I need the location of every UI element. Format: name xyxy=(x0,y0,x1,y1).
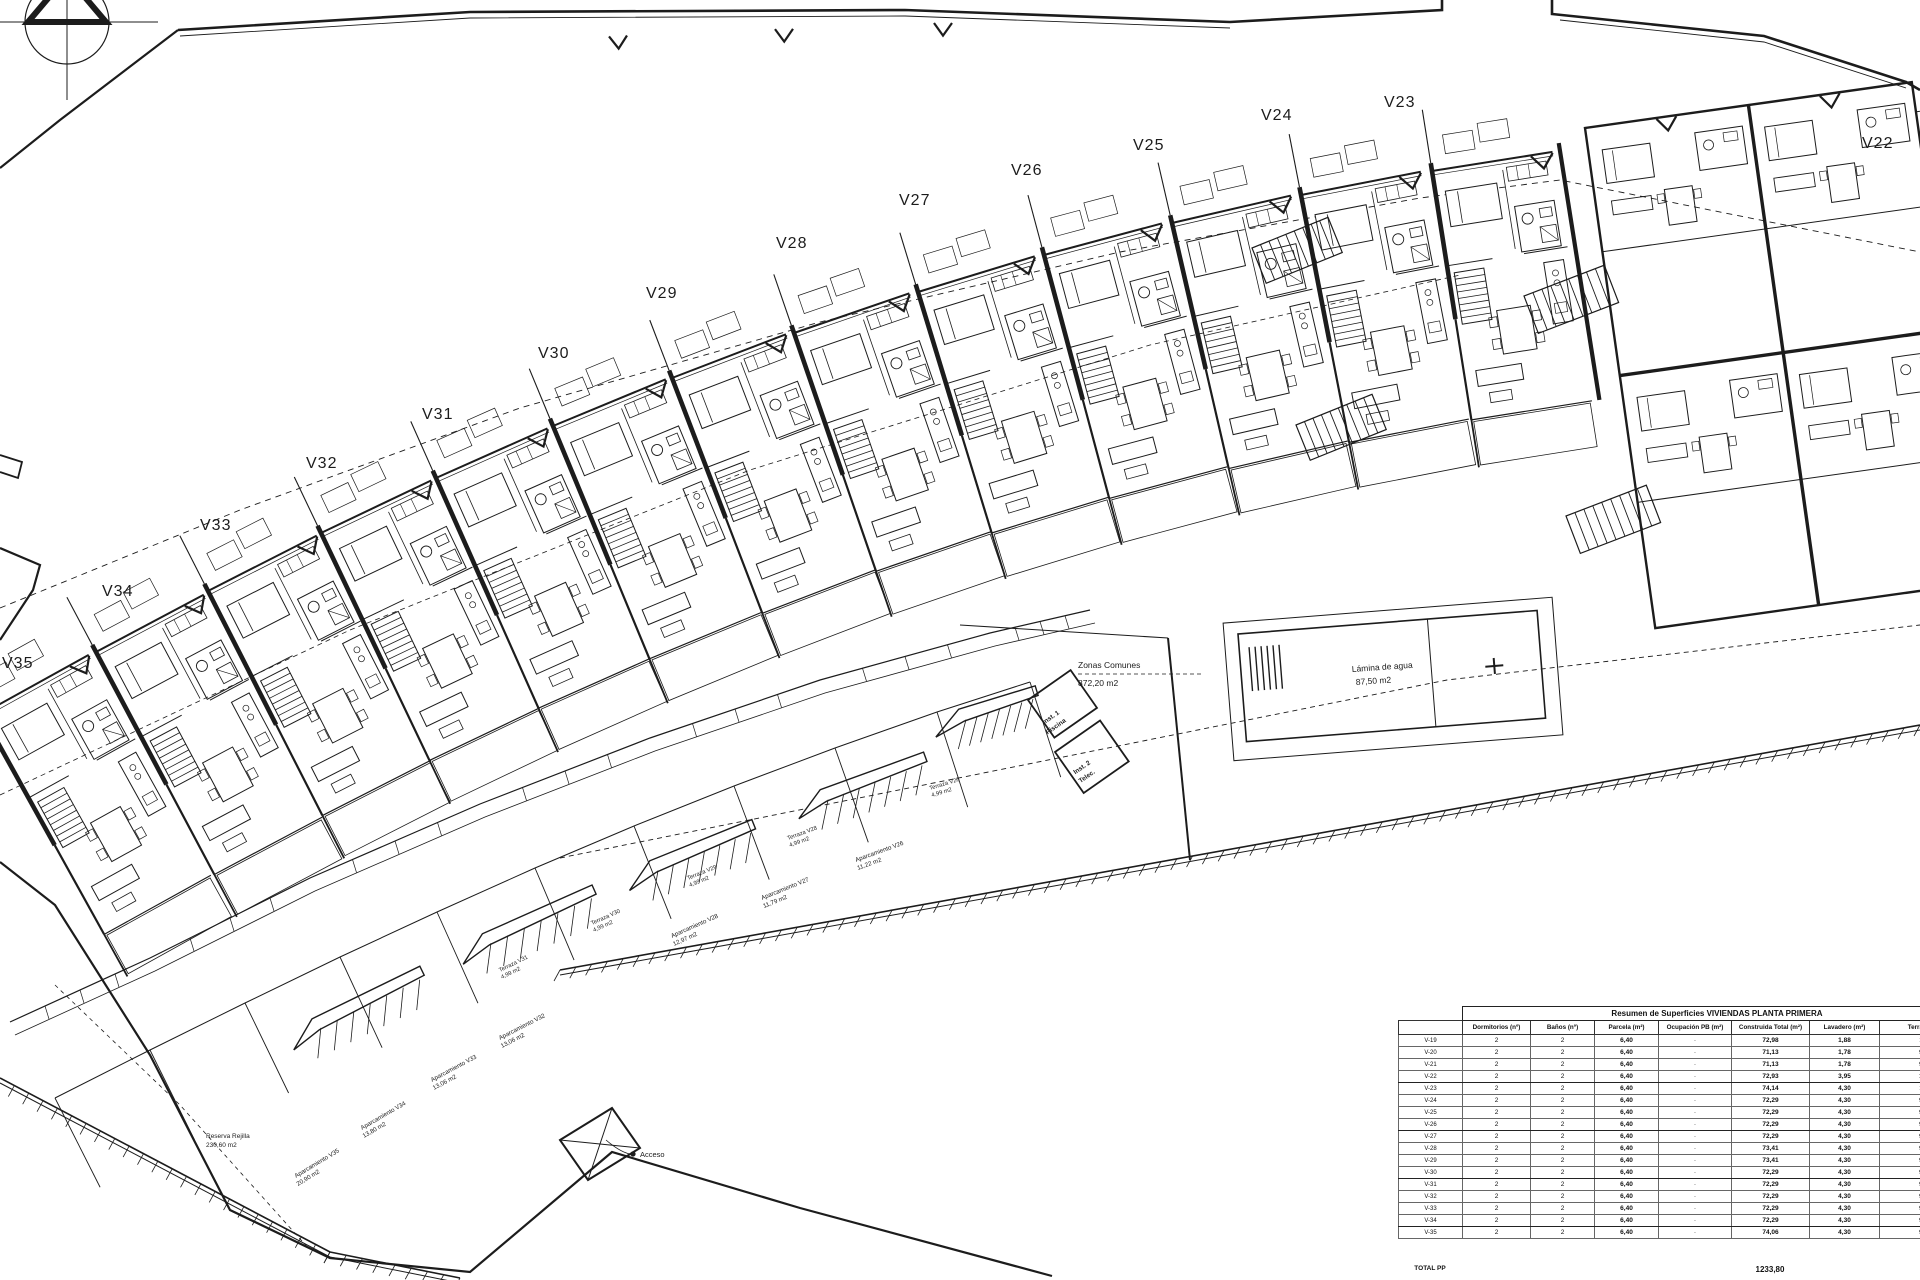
table-row-v-27: V-27226,40-72,294,309,15 xyxy=(1399,1131,1920,1143)
cell-v-33-0: V-33 xyxy=(1399,1203,1463,1215)
ramp xyxy=(792,752,937,836)
garden-fence xyxy=(1289,134,1299,187)
coffee-table xyxy=(774,575,798,592)
stair-tread xyxy=(489,570,516,582)
cell-v-30-5: 72,29 xyxy=(1732,1167,1810,1179)
dining-table xyxy=(203,747,254,802)
hob-burner xyxy=(582,550,590,558)
meter-box xyxy=(555,377,590,406)
kitchen-sink xyxy=(476,620,491,634)
terrace-divider xyxy=(538,708,558,752)
meter-box xyxy=(706,311,741,339)
sofa xyxy=(1476,363,1524,386)
stall-divider xyxy=(150,1050,194,1140)
sink xyxy=(1029,311,1043,323)
partition xyxy=(1114,247,1135,324)
cell-v-31-1: 2 xyxy=(1463,1179,1531,1191)
stair-tread xyxy=(1334,329,1363,335)
chair xyxy=(317,729,329,742)
stair-tread xyxy=(1088,390,1117,398)
meter-box xyxy=(94,600,129,631)
gate-cross xyxy=(588,1108,612,1180)
walkway-divider xyxy=(438,823,442,836)
sofa xyxy=(989,470,1038,499)
stair-tread xyxy=(1330,309,1359,315)
table-row-v-20: V-20226,40-71,131,789,15 xyxy=(1399,1047,1920,1059)
hob-burner xyxy=(134,772,142,780)
table-total-row: TOTAL PP 1233,80 xyxy=(1398,1265,1920,1280)
kitchen-sink xyxy=(1428,321,1442,333)
kitchen-sink xyxy=(1179,371,1193,384)
stair-tread xyxy=(720,474,748,485)
wardrobe-line xyxy=(174,620,181,632)
coffee-table xyxy=(889,534,913,551)
stair-outline xyxy=(1524,265,1619,333)
ramp-outline xyxy=(285,966,429,1050)
unit-label-v24: V24 xyxy=(1261,107,1292,124)
chair xyxy=(1692,441,1700,451)
hob-burner xyxy=(129,763,137,771)
bed-pillow-line xyxy=(1775,128,1779,158)
dining-table xyxy=(764,489,812,542)
walkway-divider xyxy=(115,974,119,987)
bed-pillow-line xyxy=(1612,150,1616,180)
pool-ladder xyxy=(1273,645,1276,689)
stair-tread xyxy=(60,827,86,842)
cell-v-34-2: 2 xyxy=(1531,1215,1595,1227)
cell-v-30-2: 2 xyxy=(1531,1167,1595,1179)
wardrobe-line xyxy=(297,555,303,567)
stair-tread xyxy=(281,708,308,722)
walkway-divider xyxy=(45,1006,49,1019)
cell-v-32-2: 2 xyxy=(1531,1191,1595,1203)
stair-tread xyxy=(1458,294,1488,299)
chair xyxy=(1406,330,1416,341)
wardrobe-line xyxy=(1012,272,1016,285)
stair-tread xyxy=(388,647,415,660)
stair-tread xyxy=(1333,322,1362,328)
dining-table xyxy=(1497,305,1537,354)
stair-tread xyxy=(269,685,296,699)
toilet xyxy=(650,443,664,457)
unit-stairs xyxy=(150,727,201,787)
cell-v-27-5: 72,29 xyxy=(1732,1131,1810,1143)
rear-terrace xyxy=(1351,421,1475,487)
garden-fence xyxy=(529,369,550,419)
unit-plan-v29 xyxy=(650,276,894,658)
coffee-table xyxy=(1006,497,1030,513)
stair-tread xyxy=(1455,275,1485,280)
rear-wall xyxy=(1229,441,1348,468)
unit-label-v29: V29 xyxy=(646,285,677,302)
dining-table xyxy=(1001,411,1046,463)
chair xyxy=(197,769,209,782)
coffee-table xyxy=(222,833,246,852)
party-wall-rear xyxy=(497,615,538,708)
table-row-v-30: V-30226,40-72,294,309,15 xyxy=(1399,1167,1920,1179)
cell-v-21-7: 9,15 xyxy=(1880,1059,1920,1071)
hob-burner xyxy=(1176,349,1183,356)
rear-wall xyxy=(429,708,539,761)
stair-tread xyxy=(165,756,191,770)
garden-fence xyxy=(180,536,205,584)
partition xyxy=(546,516,586,534)
cell-v-28-6: 4,30 xyxy=(1810,1143,1880,1155)
partition xyxy=(210,679,249,700)
bed xyxy=(1,703,64,760)
meter-box xyxy=(1214,166,1248,191)
chair xyxy=(347,690,359,703)
unit-plan-v26 xyxy=(1028,164,1240,545)
rear-wall xyxy=(104,875,211,934)
ramp-tick xyxy=(984,709,1007,739)
wall-tick xyxy=(166,1169,172,1180)
access-gate: Acceso xyxy=(560,1108,665,1180)
stair-tread xyxy=(727,493,755,504)
unit-label-v25: V25 xyxy=(1133,137,1164,154)
stair-tread xyxy=(1080,359,1109,367)
rear-terrace xyxy=(541,661,667,749)
cell-v-26-7: 9,15 xyxy=(1880,1119,1920,1131)
cell-v-23-3: 6,40 xyxy=(1595,1083,1659,1095)
wall-tick xyxy=(340,1255,346,1266)
chair xyxy=(427,674,439,686)
wall-line-2 xyxy=(560,730,1920,975)
wardrobe-line xyxy=(887,309,892,322)
stair-tread xyxy=(1083,371,1112,379)
header-2: Baños (nº) xyxy=(1531,1021,1595,1035)
cell-v-25-2: 2 xyxy=(1531,1107,1595,1119)
reserva-label: Reserva Rejilla xyxy=(206,1133,250,1140)
cell-v-29-1: 2 xyxy=(1463,1155,1531,1167)
walkway-divider xyxy=(270,898,274,911)
cell-v-23-4: - xyxy=(1659,1083,1732,1095)
cell-v-26-1: 2 xyxy=(1463,1119,1531,1131)
hob-burner xyxy=(933,418,941,426)
chair xyxy=(208,788,220,801)
cell-v-29-7: 9,15 xyxy=(1880,1155,1920,1167)
walkway-divider xyxy=(190,938,194,951)
facade-wall xyxy=(1044,223,1162,255)
sofa xyxy=(420,692,468,726)
terrace-divider xyxy=(876,571,892,616)
bed xyxy=(1059,260,1119,308)
bathroom xyxy=(186,640,243,699)
wardrobe xyxy=(1118,233,1160,257)
rear-terrace xyxy=(325,763,450,856)
stair-tread xyxy=(264,673,291,687)
unit-label-v26: V26 xyxy=(1011,162,1042,179)
toilet xyxy=(1900,364,1911,375)
bed xyxy=(454,473,516,527)
chair xyxy=(1694,189,1702,199)
pool-label: Lámina de agua xyxy=(1351,660,1413,674)
sink xyxy=(1155,278,1169,290)
rear-terrace xyxy=(1112,469,1237,542)
cell-v-25-1: 2 xyxy=(1463,1107,1531,1119)
sink xyxy=(549,482,564,495)
header-6: Lavadero (m²) xyxy=(1810,1021,1880,1035)
facade-wall xyxy=(1172,196,1291,223)
toilet xyxy=(1738,387,1749,398)
cell-v-29-3: 6,40 xyxy=(1595,1155,1659,1167)
ramp xyxy=(285,966,436,1066)
stair-tread xyxy=(729,499,757,510)
terrace-divider xyxy=(649,659,667,703)
sofa xyxy=(1611,195,1653,214)
stair-tread xyxy=(616,550,644,561)
partition xyxy=(1270,289,1313,299)
party-wall xyxy=(1431,163,1456,319)
facade-wall xyxy=(1432,152,1552,171)
unit-stairs xyxy=(598,508,646,568)
unit-plan-v32 xyxy=(294,425,560,804)
cell-v-34-0: V-34 xyxy=(1399,1215,1463,1227)
partition xyxy=(1447,259,1492,266)
stair-tread xyxy=(606,526,634,537)
pool-basin xyxy=(1238,610,1546,741)
cell-v-35-1: 2 xyxy=(1463,1227,1531,1239)
stair-tread xyxy=(500,594,527,606)
chair xyxy=(247,767,259,780)
cell-v-35-4: - xyxy=(1659,1227,1732,1239)
bed xyxy=(1187,230,1246,277)
walkway-divider xyxy=(523,788,527,801)
hob-burner xyxy=(810,448,818,456)
bed-pillow-line xyxy=(1647,398,1651,428)
cell-v-31-2: 2 xyxy=(1531,1179,1595,1191)
walkway-divider xyxy=(353,860,357,873)
stair-tread xyxy=(156,738,182,752)
unit-label-v32: V32 xyxy=(306,455,337,472)
cell-v-35-3: 6,40 xyxy=(1595,1227,1659,1239)
dining-table xyxy=(1664,186,1697,226)
sofa xyxy=(1646,443,1688,462)
wall-tick xyxy=(195,1184,201,1195)
stair-tread xyxy=(1210,354,1239,361)
cell-v-30-0: V-30 xyxy=(1399,1167,1463,1179)
meter-box xyxy=(830,268,865,296)
block-partition xyxy=(1602,206,1920,252)
dining-table xyxy=(648,534,696,588)
stair-tread xyxy=(1204,329,1233,336)
stair-tread xyxy=(382,635,409,648)
kitchen-sink xyxy=(365,674,380,688)
stair-tread xyxy=(47,805,73,820)
facade-wall xyxy=(436,428,547,478)
stair-outline xyxy=(1566,485,1661,553)
wardrobe-line xyxy=(753,355,758,368)
chair xyxy=(1856,166,1864,176)
table-row-v-29: V-29226,40-73,414,309,15 xyxy=(1399,1155,1920,1167)
cell-v-30-3: 6,40 xyxy=(1595,1167,1659,1179)
boundary-top xyxy=(178,0,1442,30)
toilet xyxy=(1521,212,1534,225)
cell-v-32-0: V-32 xyxy=(1399,1191,1463,1203)
hob-burner xyxy=(357,655,365,663)
cell-v-21-0: V-21 xyxy=(1399,1059,1463,1071)
dining-table xyxy=(1699,433,1732,473)
boundary-left-diagonal xyxy=(0,30,178,168)
toilet xyxy=(194,658,209,673)
cell-v-22-7: 10,2 xyxy=(1880,1071,1920,1083)
walkway-divider xyxy=(80,990,84,1003)
wall-tick xyxy=(8,1086,14,1097)
block-outline xyxy=(1585,82,1920,628)
facade-wall xyxy=(208,536,317,591)
cell-v-23-5: 74,14 xyxy=(1732,1083,1810,1095)
header-3: Parcela (m²) xyxy=(1595,1021,1659,1035)
cell-v-20-1: 2 xyxy=(1463,1047,1531,1059)
sink xyxy=(666,433,681,446)
boundary-top-right-inner xyxy=(1560,20,1906,88)
boundary-top-right xyxy=(1552,0,1920,90)
stair-tread xyxy=(962,406,991,415)
table-row-v-28: V-28226,40-73,414,309,15 xyxy=(1399,1143,1920,1155)
summary-table: Resumen de Superficies VIVIENDAS PLANTA … xyxy=(1398,1006,1920,1280)
hob-burner xyxy=(1301,322,1308,329)
exterior-stairs xyxy=(1524,265,1619,333)
wall-tick xyxy=(123,1146,129,1157)
header-5: Construida Total (m²) xyxy=(1732,1021,1810,1035)
hob-burner xyxy=(469,601,477,609)
stair-tread xyxy=(958,393,987,402)
stair-tread xyxy=(1087,384,1116,392)
table-row-v-35: V-35226,40-74,064,309,65 xyxy=(1399,1227,1920,1239)
sofa xyxy=(311,746,359,781)
meter-box xyxy=(1051,210,1085,236)
cell-v-32-5: 72,29 xyxy=(1732,1191,1810,1203)
cell-v-23-0: V-23 xyxy=(1399,1083,1463,1095)
chair xyxy=(1819,171,1827,181)
cell-v-28-3: 6,40 xyxy=(1595,1143,1659,1155)
rear-terrace xyxy=(1474,403,1597,465)
cell-v-24-1: 2 xyxy=(1463,1095,1531,1107)
boundary-wedge xyxy=(934,23,952,36)
unit-label-v35: V35 xyxy=(2,655,33,672)
chair xyxy=(457,635,469,647)
pool-ladder xyxy=(1279,645,1282,689)
bed xyxy=(339,526,401,581)
garden-fence xyxy=(1028,195,1042,247)
garden-fence xyxy=(1422,110,1430,163)
chair xyxy=(466,655,478,667)
kitchen-sink xyxy=(142,791,157,806)
reserva-area-label: 230,60 m2 xyxy=(206,1142,237,1149)
sink xyxy=(435,534,450,547)
cell-v-19-0: V-19 xyxy=(1399,1035,1463,1047)
party-wall-rear xyxy=(962,435,992,533)
wardrobe-line xyxy=(1385,187,1388,201)
pool-ladder xyxy=(1267,646,1270,690)
cell-v-26-2: 2 xyxy=(1531,1119,1595,1131)
wardrobe-line xyxy=(1528,164,1530,178)
bed xyxy=(571,423,633,476)
table-row-v-26: V-26226,40-72,294,309,15 xyxy=(1399,1119,1920,1131)
cell-v-22-6: 3,95 xyxy=(1810,1071,1880,1083)
retaining-wall-corner-2 xyxy=(324,1252,460,1280)
unit-plan-v31 xyxy=(411,372,670,752)
rear-terrace xyxy=(432,711,557,802)
table-row-v-32: V-32226,40-72,294,309,15 xyxy=(1399,1191,1920,1203)
unit-label-v22: V22 xyxy=(1862,135,1893,152)
cell-v-24-2: 2 xyxy=(1531,1095,1595,1107)
cell-v-26-5: 72,29 xyxy=(1732,1119,1810,1131)
cell-v-33-5: 72,29 xyxy=(1732,1203,1810,1215)
facade-wall xyxy=(918,256,1035,292)
hob-burner xyxy=(1174,340,1181,347)
chair xyxy=(1410,352,1420,363)
cell-v-31-3: 6,40 xyxy=(1595,1179,1659,1191)
common-zone-label: Zonas Comunes xyxy=(1078,660,1140,670)
cell-v-27-6: 4,30 xyxy=(1810,1131,1880,1143)
meter-box xyxy=(236,518,271,549)
entry-marker-lines xyxy=(775,29,793,42)
hob-burner xyxy=(353,646,361,654)
cell-v-20-5: 71,13 xyxy=(1732,1047,1810,1059)
wardrobe-line xyxy=(1001,275,1005,288)
cell-v-21-5: 71,13 xyxy=(1732,1059,1810,1071)
entry-marker-lines xyxy=(609,36,628,50)
stair-tread xyxy=(486,564,513,576)
cell-v-34-3: 6,40 xyxy=(1595,1215,1659,1227)
sink xyxy=(96,707,111,721)
meter-box xyxy=(1180,180,1214,205)
wardrobe-line xyxy=(1139,238,1143,252)
hob-burner xyxy=(242,704,250,712)
stair-tread xyxy=(1211,361,1240,368)
party-wall-rear xyxy=(276,725,322,816)
chair xyxy=(124,807,136,820)
wardrobe-line xyxy=(527,446,533,459)
stair-tread xyxy=(1460,307,1490,312)
table-row-v-24: V-24226,40-72,294,309,15 xyxy=(1399,1095,1920,1107)
cell-v-22-3: 6,40 xyxy=(1595,1071,1659,1083)
terrace-divider xyxy=(1349,442,1358,489)
toilet xyxy=(533,492,548,507)
cell-v-19-4: - xyxy=(1659,1035,1732,1047)
walkway-divider xyxy=(693,724,697,737)
terrace-divider xyxy=(429,760,450,803)
partition xyxy=(1503,170,1516,249)
stair-tread xyxy=(1085,378,1114,386)
cell-v-21-4: - xyxy=(1659,1059,1732,1071)
sink xyxy=(785,388,799,401)
hob-burner xyxy=(697,502,705,510)
terrace-divider xyxy=(322,816,344,859)
wardrobe-line xyxy=(1256,212,1259,226)
unit-plan-v33 xyxy=(180,480,453,858)
bathroom xyxy=(1892,351,1920,395)
partition xyxy=(97,739,135,760)
stair-tread xyxy=(171,767,197,781)
cell-v-30-1: 2 xyxy=(1463,1167,1531,1179)
ramp-outline xyxy=(455,885,600,964)
cell-v-28-5: 73,41 xyxy=(1732,1143,1810,1155)
stair-tread xyxy=(1457,287,1487,292)
header-unit xyxy=(1399,1021,1463,1035)
header-1: Dormitorios (nº) xyxy=(1463,1021,1531,1035)
dining-table xyxy=(1862,410,1895,450)
cell-v-28-7: 9,15 xyxy=(1880,1143,1920,1155)
partition xyxy=(252,656,293,677)
stair-tread xyxy=(967,424,996,433)
party-wall-rear xyxy=(843,475,876,571)
chair xyxy=(1363,338,1373,349)
wardrobe-line xyxy=(1127,241,1131,255)
wall-tick xyxy=(80,1123,86,1134)
cell-v-20-2: 2 xyxy=(1531,1047,1595,1059)
